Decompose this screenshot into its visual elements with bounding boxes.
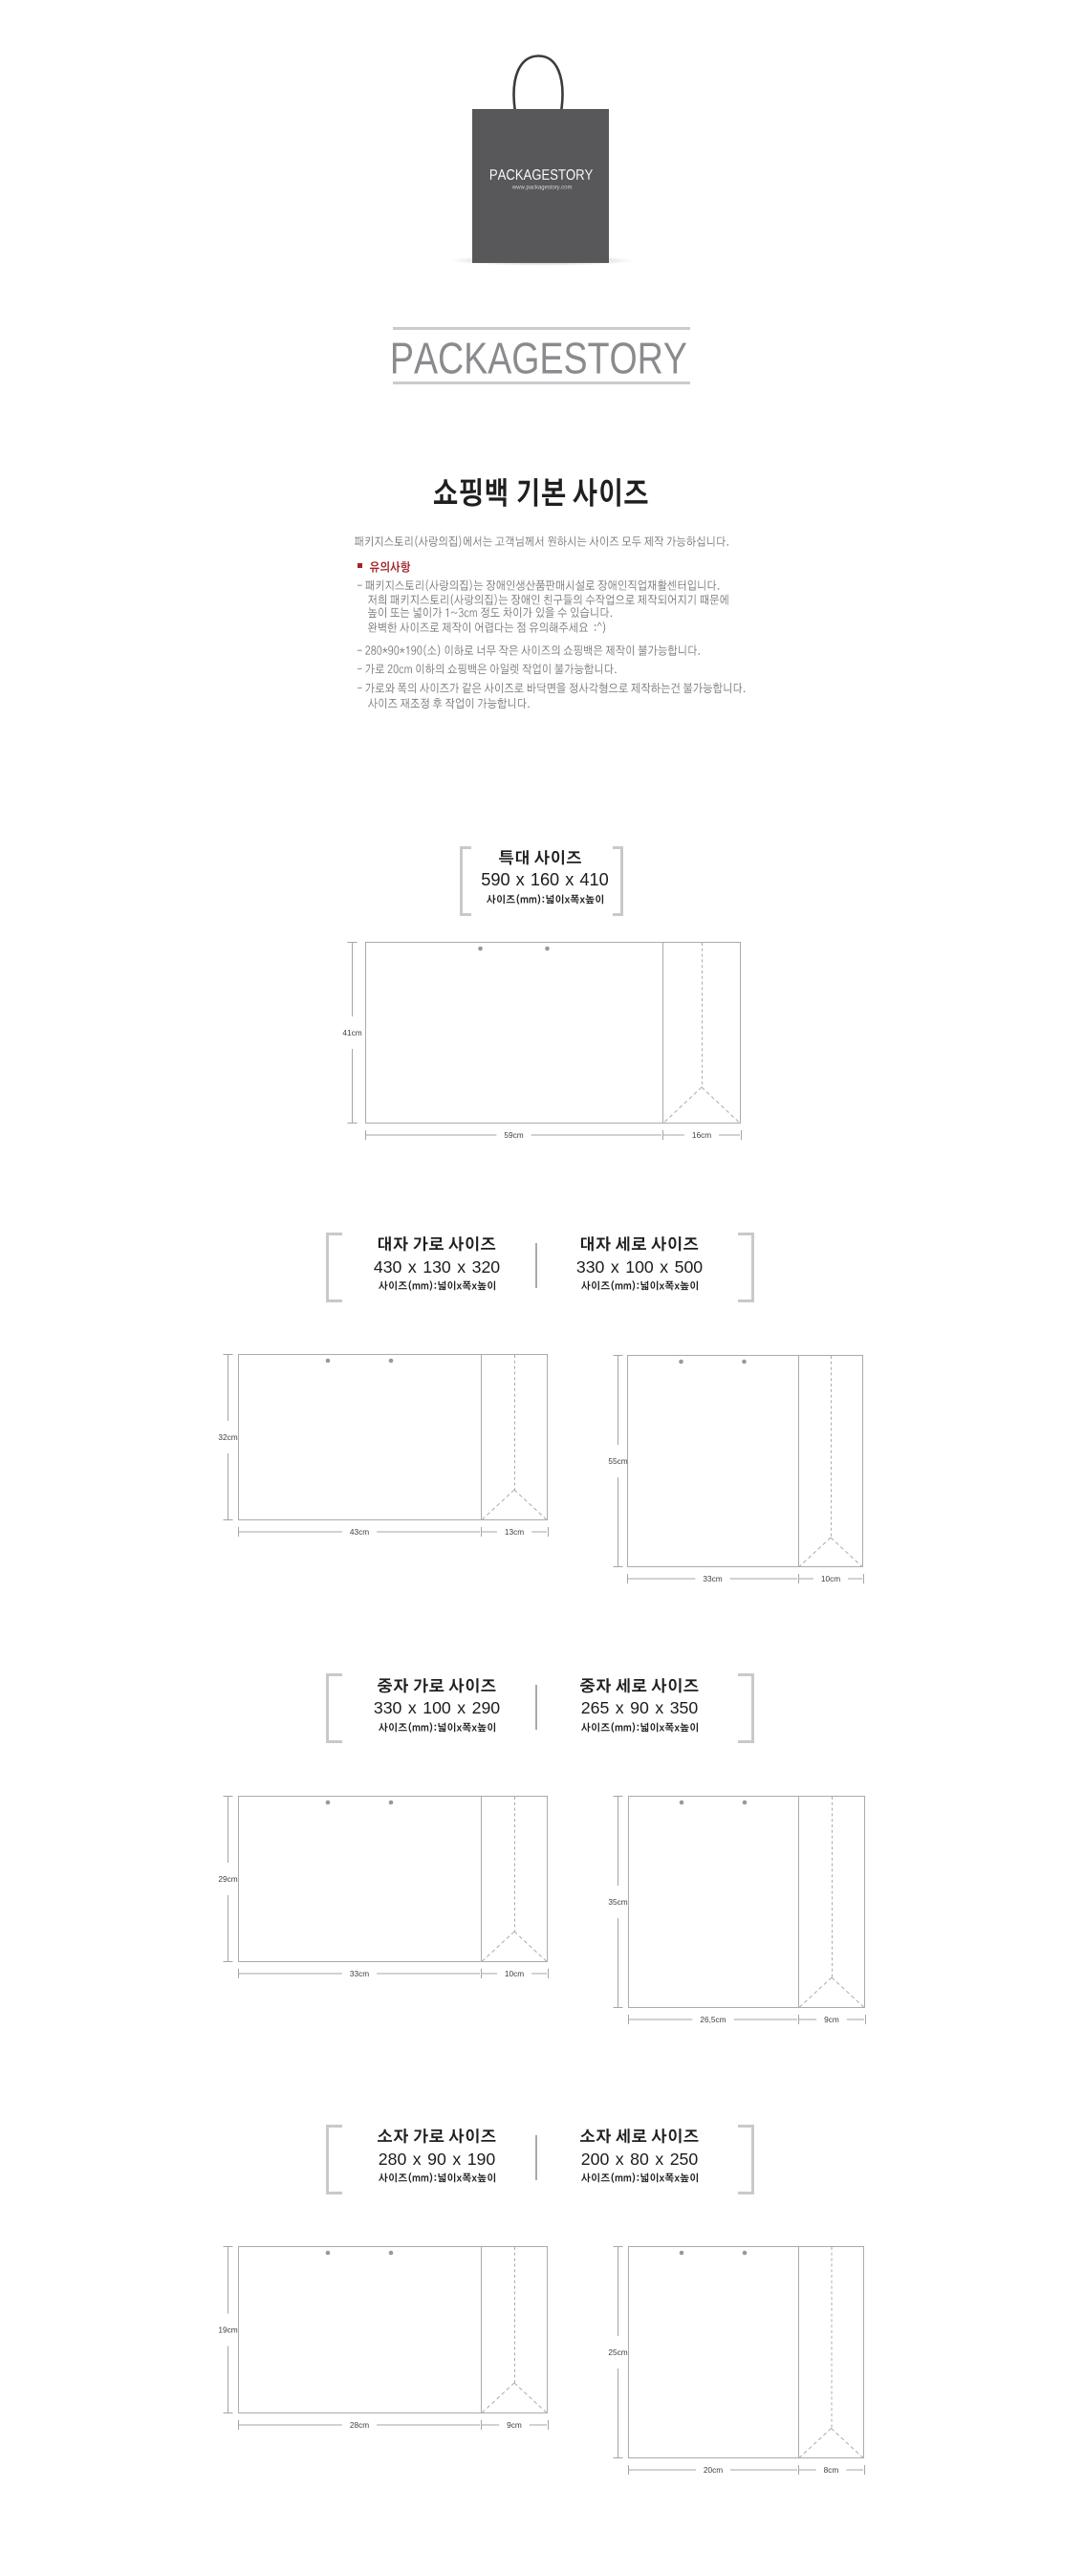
svg-text:33cm: 33cm — [350, 1969, 369, 1978]
svg-text:9cm: 9cm — [824, 2015, 839, 2024]
svg-text:20cm: 20cm — [704, 2465, 723, 2475]
svg-text:16cm: 16cm — [692, 1130, 711, 1140]
svg-text:9cm: 9cm — [507, 2420, 522, 2430]
svg-text:59cm: 59cm — [504, 1130, 523, 1140]
svg-text:55cm: 55cm — [608, 1456, 627, 1466]
svg-text:41cm: 41cm — [342, 1028, 361, 1037]
svg-text:43cm: 43cm — [350, 1527, 369, 1537]
svg-text:33cm: 33cm — [703, 1574, 722, 1583]
svg-text:10cm: 10cm — [821, 1574, 840, 1583]
svg-text:28cm: 28cm — [350, 2420, 369, 2430]
svg-text:32cm: 32cm — [218, 1432, 237, 1442]
svg-text:19cm: 19cm — [218, 2325, 237, 2335]
svg-text:8cm: 8cm — [824, 2465, 839, 2475]
svg-text:35cm: 35cm — [608, 1897, 627, 1907]
svg-text:13cm: 13cm — [505, 1527, 524, 1537]
svg-text:29cm: 29cm — [218, 1874, 237, 1884]
svg-text:25cm: 25cm — [608, 2347, 627, 2357]
svg-text:26,5cm: 26,5cm — [700, 2015, 726, 2024]
svg-text:10cm: 10cm — [505, 1969, 524, 1978]
